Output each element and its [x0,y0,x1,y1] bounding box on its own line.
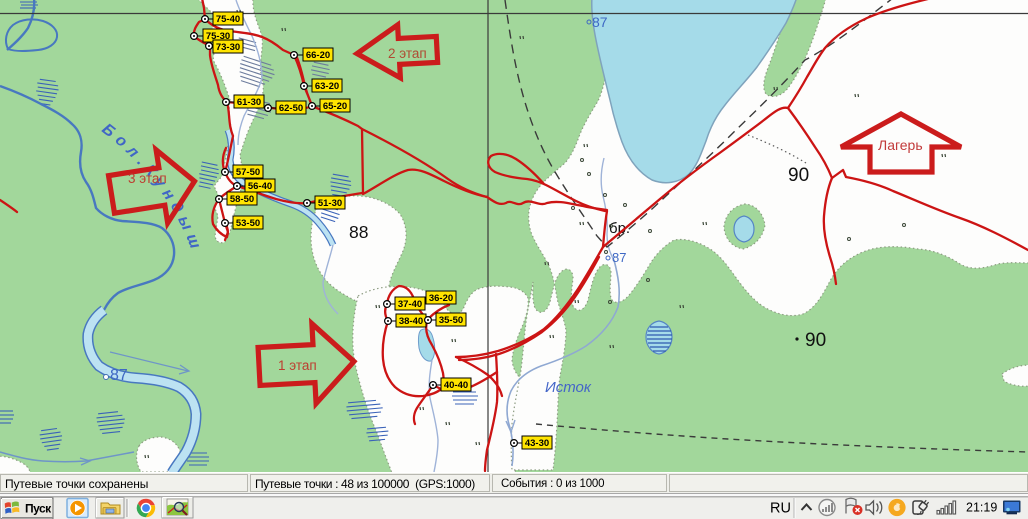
svg-text:Пуск: Пуск [25,502,52,516]
svg-text:35-50: 35-50 [439,315,463,326]
svg-text:73-30: 73-30 [216,42,240,53]
svg-text:43-30: 43-30 [525,438,549,449]
svg-text:56-40: 56-40 [248,181,272,192]
svg-text:37-40: 37-40 [398,299,422,310]
svg-text:38-40: 38-40 [399,316,423,327]
svg-text:75-40: 75-40 [216,14,240,25]
svg-text:53-50: 53-50 [236,218,260,229]
svg-text:66-20: 66-20 [306,50,330,61]
svg-text:87: 87 [612,250,626,265]
svg-text:57-50: 57-50 [236,167,260,178]
svg-text:3 этап: 3 этап [128,171,167,186]
svg-text:90: 90 [788,165,809,186]
svg-text:40-40: 40-40 [444,380,468,391]
svg-text:87: 87 [110,367,128,384]
svg-text:88: 88 [349,222,368,242]
svg-text:21:19: 21:19 [966,501,997,515]
svg-text:87: 87 [592,14,608,30]
svg-text:2 этап: 2 этап [388,46,427,61]
svg-text:Исток: Исток [545,379,592,396]
svg-text:36-20: 36-20 [429,293,453,304]
svg-text:1 этап: 1 этап [278,358,317,373]
svg-text:90: 90 [805,330,826,351]
svg-text:65-20: 65-20 [323,101,347,112]
svg-text:61-30: 61-30 [237,97,261,108]
svg-text:58-50: 58-50 [230,194,254,205]
svg-text:51-30: 51-30 [318,198,342,209]
svg-text:Лагерь: Лагерь [878,137,923,153]
svg-text:RU: RU [770,501,791,517]
svg-text:62-50: 62-50 [279,103,303,114]
svg-text:63-20: 63-20 [315,81,339,92]
